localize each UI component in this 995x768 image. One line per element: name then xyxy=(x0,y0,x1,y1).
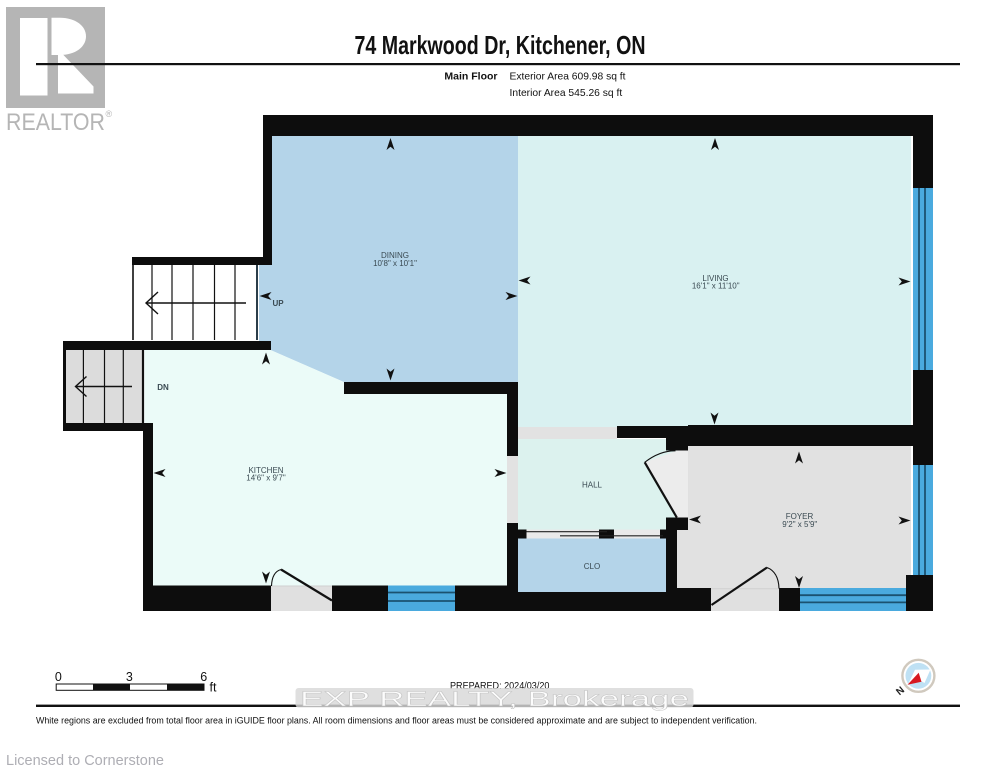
svg-text:0: 0 xyxy=(55,670,62,684)
svg-text:ft: ft xyxy=(210,680,217,694)
svg-text:6: 6 xyxy=(200,670,207,684)
svg-text:Interior Area 545.26 sq ft: Interior Area 545.26 sq ft xyxy=(510,87,623,99)
svg-text:REALTOR: REALTOR xyxy=(6,109,105,136)
svg-text:74 Markwood Dr, Kitchener, ON: 74 Markwood Dr, Kitchener, ON xyxy=(355,30,646,60)
svg-text:Licensed to Cornerstone: Licensed to Cornerstone xyxy=(6,753,164,768)
svg-text:9'2" x 5'9": 9'2" x 5'9" xyxy=(782,520,817,529)
svg-text:DN: DN xyxy=(157,383,169,392)
svg-text:UP: UP xyxy=(272,299,284,308)
svg-text:CLO: CLO xyxy=(584,562,600,571)
svg-text:Exterior Area 609.98 sq ft: Exterior Area 609.98 sq ft xyxy=(510,71,626,83)
svg-text:10'8" x 10'1": 10'8" x 10'1" xyxy=(373,259,417,268)
svg-text:White regions are excluded fro: White regions are excluded from total fl… xyxy=(36,716,757,726)
svg-text:EXP REALTY, Brokerage: EXP REALTY, Brokerage xyxy=(300,687,689,711)
svg-text:14'6" x 9'7": 14'6" x 9'7" xyxy=(246,474,286,483)
svg-text:HALL: HALL xyxy=(582,480,603,489)
svg-text:3: 3 xyxy=(126,670,133,684)
svg-text:Main Floor: Main Floor xyxy=(444,71,497,83)
svg-text:16'1" x 11'10": 16'1" x 11'10" xyxy=(692,282,740,291)
svg-text:®: ® xyxy=(106,109,113,119)
